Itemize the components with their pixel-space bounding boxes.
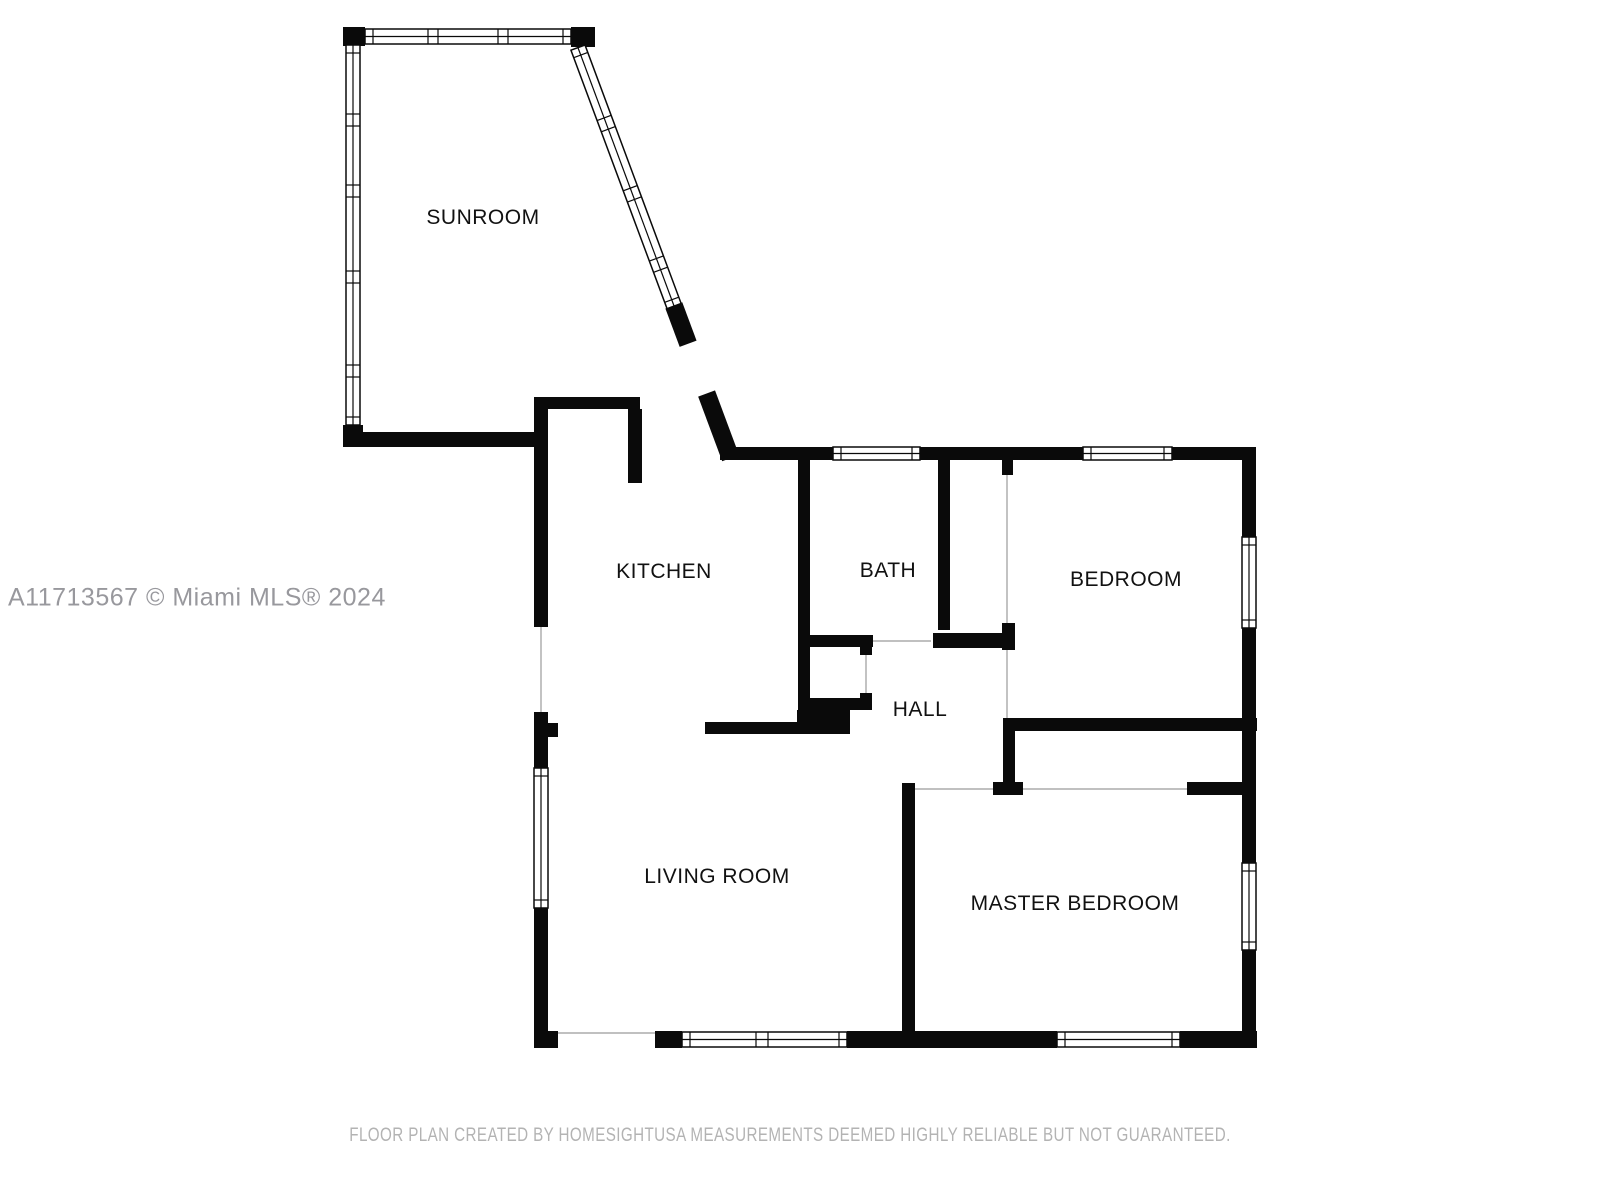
- master-east-window: [1242, 863, 1256, 950]
- room-label-bedroom: BEDROOM: [1070, 568, 1182, 592]
- room-label-kitchen: KITCHEN: [616, 560, 712, 584]
- room-label-hall: HALL: [893, 698, 948, 722]
- room-label-bath: BATH: [860, 559, 916, 583]
- bath-walls: [800, 460, 1002, 648]
- room-label-sunroom: SUNROOM: [426, 206, 539, 230]
- sunroom-left-window: [346, 45, 360, 425]
- floor-plan-page: SUNROOM KITCHEN BATH BEDROOM HALL LIVING…: [0, 0, 1600, 1200]
- room-label-living-room: LIVING ROOM: [644, 865, 790, 889]
- bedroom-east-window: [1242, 537, 1256, 628]
- room-label-master-bedroom: MASTER BEDROOM: [971, 892, 1180, 916]
- sunroom-top-window: [365, 29, 571, 44]
- footer-disclaimer: FLOOR PLAN CREATED BY HOMESIGHTUSA MEASU…: [349, 1125, 1230, 1147]
- mls-watermark: A11713567 © Miami MLS® 2024: [8, 584, 386, 613]
- bedroom-north-window: [1083, 447, 1172, 460]
- bedroom-walls: [1002, 460, 1257, 795]
- hall-closet-walls: [705, 647, 872, 734]
- bath-north-window: [833, 447, 920, 460]
- living-south-window: [682, 1032, 847, 1047]
- master-south-window: [1057, 1032, 1180, 1047]
- sunroom-walls: [343, 27, 595, 447]
- living-west-window: [534, 768, 548, 908]
